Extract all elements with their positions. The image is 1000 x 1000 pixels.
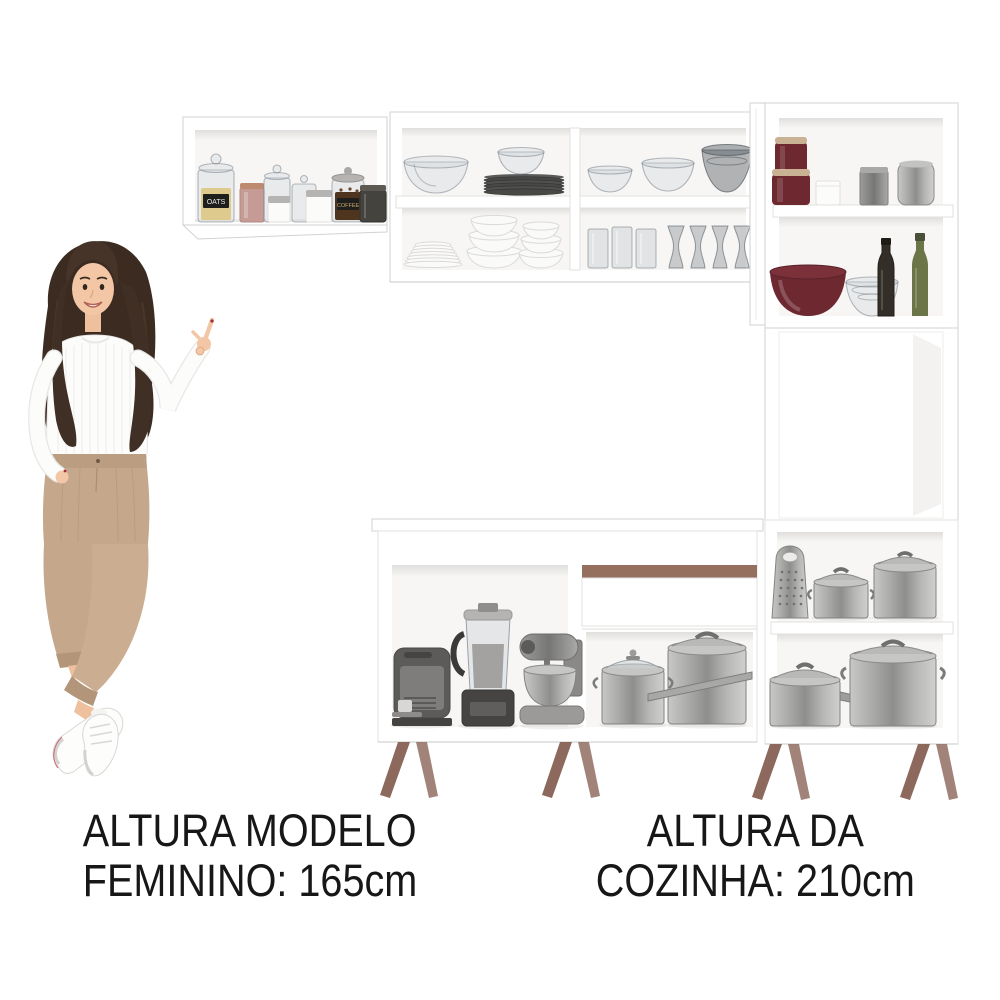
pink-canister bbox=[240, 183, 264, 222]
white-bowl-stacks bbox=[467, 215, 563, 268]
caption-model-height-line2: FEMININO: 165cm bbox=[83, 856, 417, 906]
bottom-right-cabinet bbox=[765, 520, 958, 744]
oven-compartment bbox=[765, 328, 958, 520]
oats-label: OATS bbox=[207, 199, 226, 206]
drawer-front bbox=[582, 578, 757, 626]
fingernail bbox=[210, 319, 213, 322]
model-figure bbox=[37, 241, 214, 776]
caption-kitchen-height: ALTURA DA COZINHA: 210cm bbox=[505, 806, 1000, 906]
caption-model-height: ALTURA MODELO FEMININO: 165cm bbox=[0, 806, 500, 906]
stand-mixer bbox=[520, 634, 584, 730]
pants bbox=[43, 454, 149, 722]
wall-cabinet-left: OATS bbox=[183, 117, 387, 239]
coffee-machine bbox=[390, 648, 454, 729]
caption-kitchen-height-line1: ALTURA DA bbox=[646, 806, 863, 856]
small-white-canister bbox=[268, 196, 290, 222]
burgundy-canisters bbox=[772, 137, 810, 205]
dark-glass-jar bbox=[360, 185, 386, 222]
silver-tin bbox=[860, 167, 888, 205]
product-image: .fr{fill:#ffffff;stroke:#e2e1df;stroke-w… bbox=[0, 0, 1000, 1000]
coffee-label: COFFEE bbox=[337, 203, 360, 209]
cabinet-legs bbox=[380, 742, 958, 800]
caption-model-height-line1: ALTURA MODELO bbox=[83, 806, 417, 856]
drawer bbox=[582, 565, 757, 629]
caption-kitchen-height-line2: COZINHA: 210cm bbox=[595, 856, 914, 906]
box-grater bbox=[772, 546, 808, 618]
wall-cabinet-center bbox=[390, 112, 756, 282]
white-canister bbox=[306, 190, 332, 222]
silver-canister bbox=[898, 161, 934, 206]
base-cabinet bbox=[372, 519, 763, 742]
tall-cabinet bbox=[765, 103, 958, 520]
white-container bbox=[816, 181, 840, 205]
drawer-accent-strip bbox=[582, 565, 757, 578]
drinking-glasses bbox=[588, 227, 656, 268]
coffee-jar: COFFEE bbox=[332, 167, 364, 222]
sneakers bbox=[53, 708, 123, 776]
